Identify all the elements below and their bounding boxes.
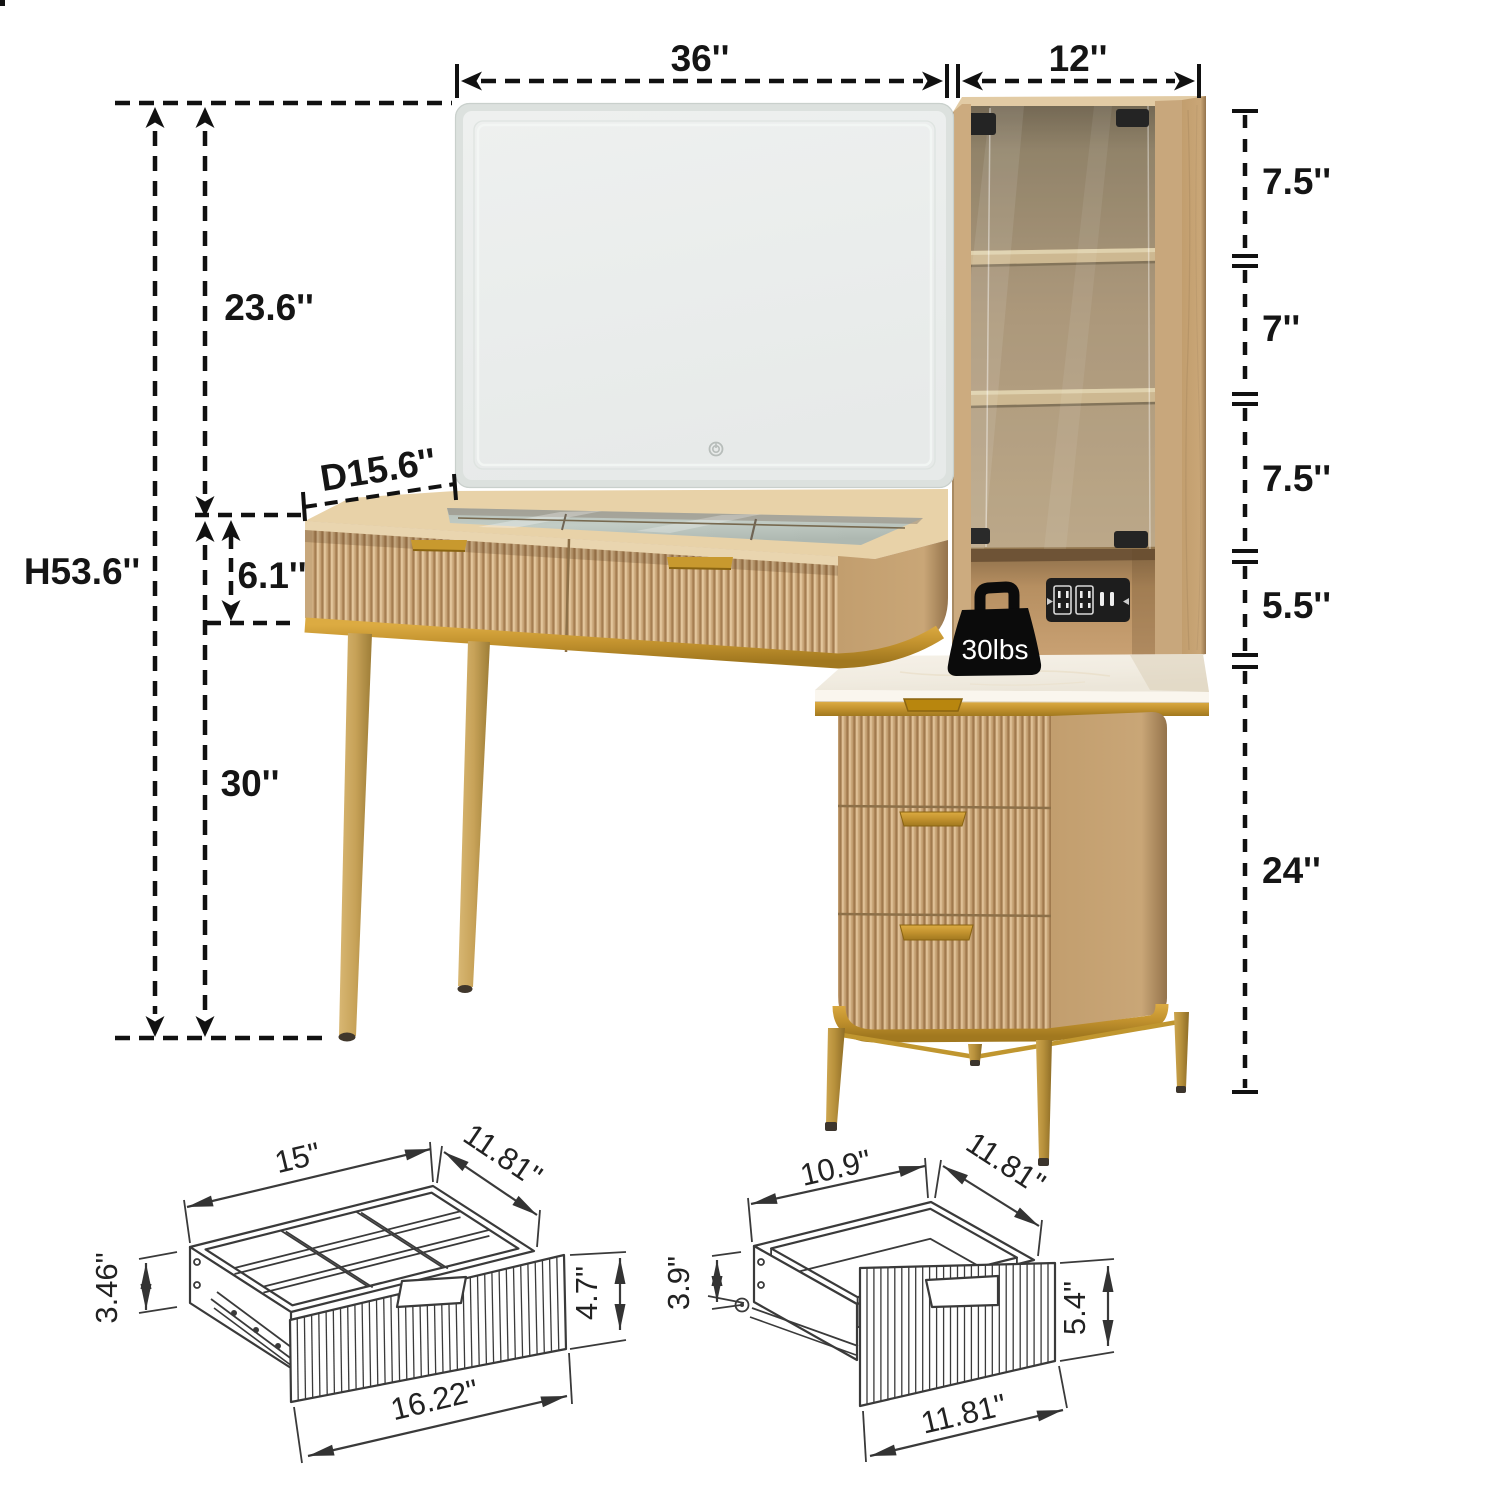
svg-text:4.7": 4.7": [569, 1266, 604, 1320]
svg-text:H53.6'': H53.6'': [24, 551, 140, 592]
svg-text:7.5'': 7.5'': [1262, 458, 1331, 499]
svg-text:5.5'': 5.5'': [1262, 585, 1331, 626]
svg-text:30lbs: 30lbs: [962, 634, 1029, 665]
svg-text:7'': 7'': [1262, 308, 1300, 349]
svg-text:3.9": 3.9": [661, 1256, 696, 1310]
svg-text:36'': 36'': [671, 38, 730, 79]
svg-text:30'': 30'': [221, 763, 280, 804]
svg-text:6.1'': 6.1'': [237, 555, 306, 596]
svg-text:7.5'': 7.5'': [1262, 161, 1331, 202]
svg-text:5.4": 5.4": [1057, 1281, 1092, 1335]
svg-text:24'': 24'': [1262, 850, 1321, 891]
svg-text:12'': 12'': [1049, 38, 1108, 79]
svg-text:3.46": 3.46": [89, 1252, 124, 1323]
svg-text:23.6'': 23.6'': [224, 287, 314, 328]
